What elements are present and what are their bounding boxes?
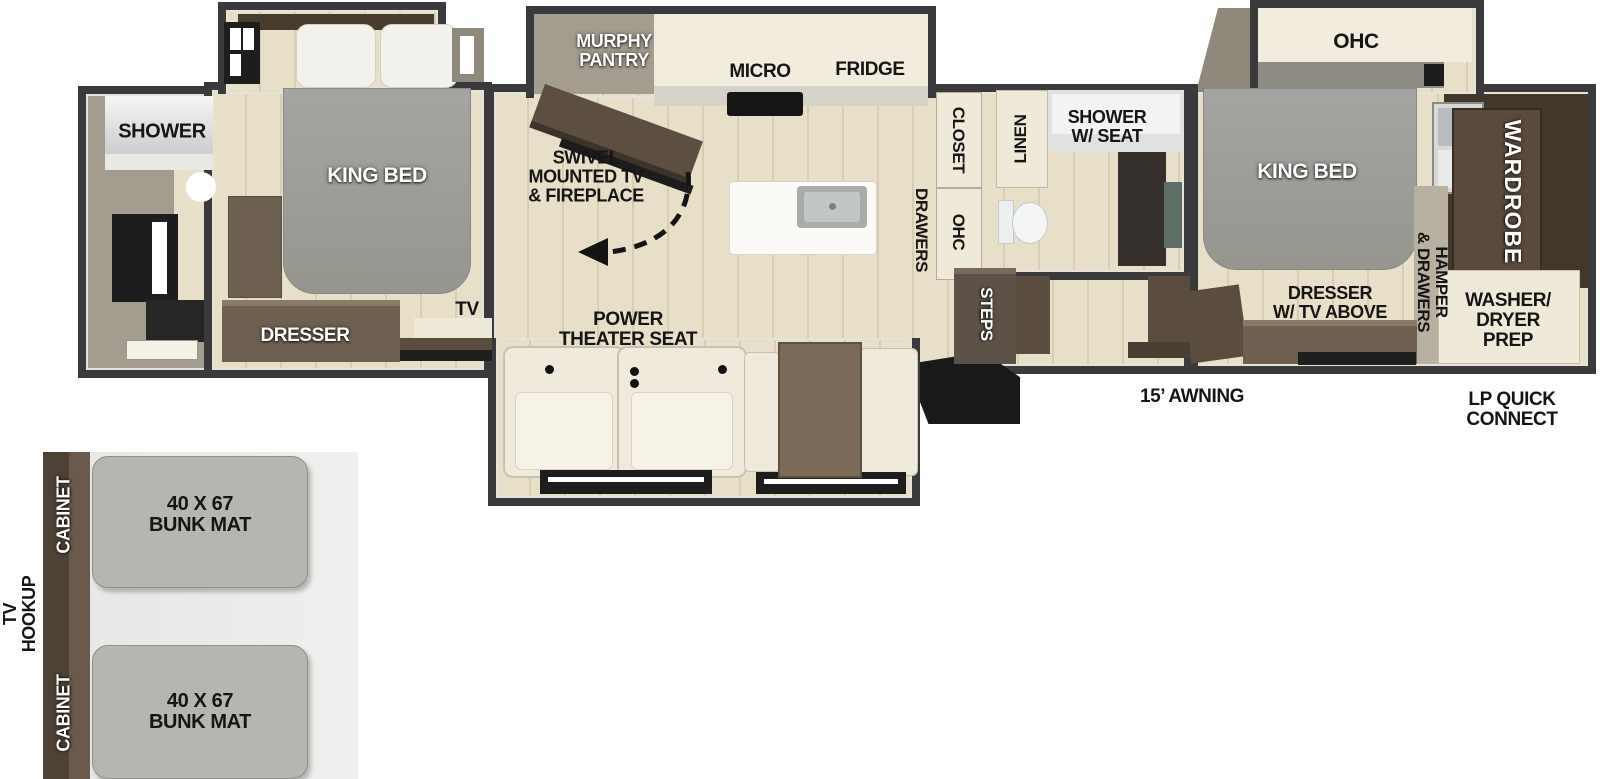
rear-bath-sink [186,172,216,202]
rear-pillow-left [296,24,376,88]
cupholder-dot [718,365,727,374]
island-sink [797,186,867,228]
cupholder-dot [630,379,639,388]
rear-king-bed [283,88,471,294]
dinette-bench-right [860,348,918,476]
label-power-theater-seat: POWER THEATER SEAT [559,310,697,350]
label-fridge: FRIDGE [835,60,904,80]
rear-tv [400,350,492,361]
label-wardrobe: WARDROBE [1501,120,1525,265]
label-tv-hookup: TV HOOKUP [1,576,39,653]
rear-slide-window [224,22,260,84]
label-murphy-pantry: MURPHY PANTRY [576,32,652,70]
front-slide-tv [1424,64,1444,86]
label-drawers: DRAWERS [912,188,930,272]
label-shower-rear: SHOWER [118,122,206,143]
rear-tv-shelf [414,318,492,340]
theater-seat-right [617,346,747,478]
theater-seat-left [503,346,625,478]
label-hamper-drawers: HAMPER & DRAWERS [1414,232,1450,332]
hall-desk-left [1016,276,1050,354]
label-bunk-mat-top: 40 X 67 BUNK MAT [149,494,251,536]
rear-nightstand [228,196,282,298]
label-ohc-mid: OHC [949,214,967,251]
mid-toilet-bowl [1012,202,1048,244]
label-king-bed-front: KING BED [1257,161,1356,183]
rv-floorplan-canvas: SHOWER KING BED DRESSER TV MURPHY PANTRY… [0,0,1600,779]
cupholder-dot [545,365,554,374]
front-tv [1298,352,1416,365]
dinette-bench-left [744,352,780,472]
label-tv-rear: TV [455,300,478,320]
label-cabinet-top: CABINET [55,476,74,553]
label-dresser-rear: DRESSER [260,326,349,346]
label-dresser-tv-front: DRESSER W/ TV ABOVE [1273,284,1387,322]
label-awning: 15’ AWNING [1140,387,1244,407]
label-micro: MICRO [729,62,790,82]
label-lp-quick-connect: LP QUICK CONNECT [1466,390,1557,430]
mid-vanity [1118,152,1166,266]
front-door-bench [1181,284,1248,363]
label-swivel-tv: SWIVEL MOUNTED TV & FIREPLACE [528,149,644,206]
dinette-table [778,342,862,478]
cooktop [727,92,803,116]
slide-window-left [540,470,712,494]
label-ohc-front: OHC [1333,31,1378,53]
front-slide-corner-wedge [1196,8,1254,92]
rear-pillow-right [380,24,458,88]
rear-bath-vanity [146,300,204,342]
label-washer-dryer: WASHER/ DRYER PREP [1465,291,1551,351]
label-bunk-mat-bottom: 40 X 67 BUNK MAT [149,691,251,733]
rear-right-window [452,28,484,82]
label-cabinet-bottom: CABINET [55,674,74,751]
cupholder-dot [630,367,639,376]
label-linen: LINEN [1012,114,1030,163]
front-headboard [1258,62,1444,88]
mid-vanity-sink [1164,182,1182,248]
label-closet: CLOSET [949,107,967,174]
rear-bath-drawer [126,340,198,360]
hall-desk-corner [1128,342,1190,358]
label-shower-w-seat: SHOWER W/ SEAT [1068,108,1147,146]
rear-shower-pan [105,154,213,170]
label-steps: STEPS [977,287,995,341]
rear-bath-window [112,214,178,302]
wardrobe-panel [1452,108,1542,280]
label-king-bed-rear: KING BED [327,165,426,187]
